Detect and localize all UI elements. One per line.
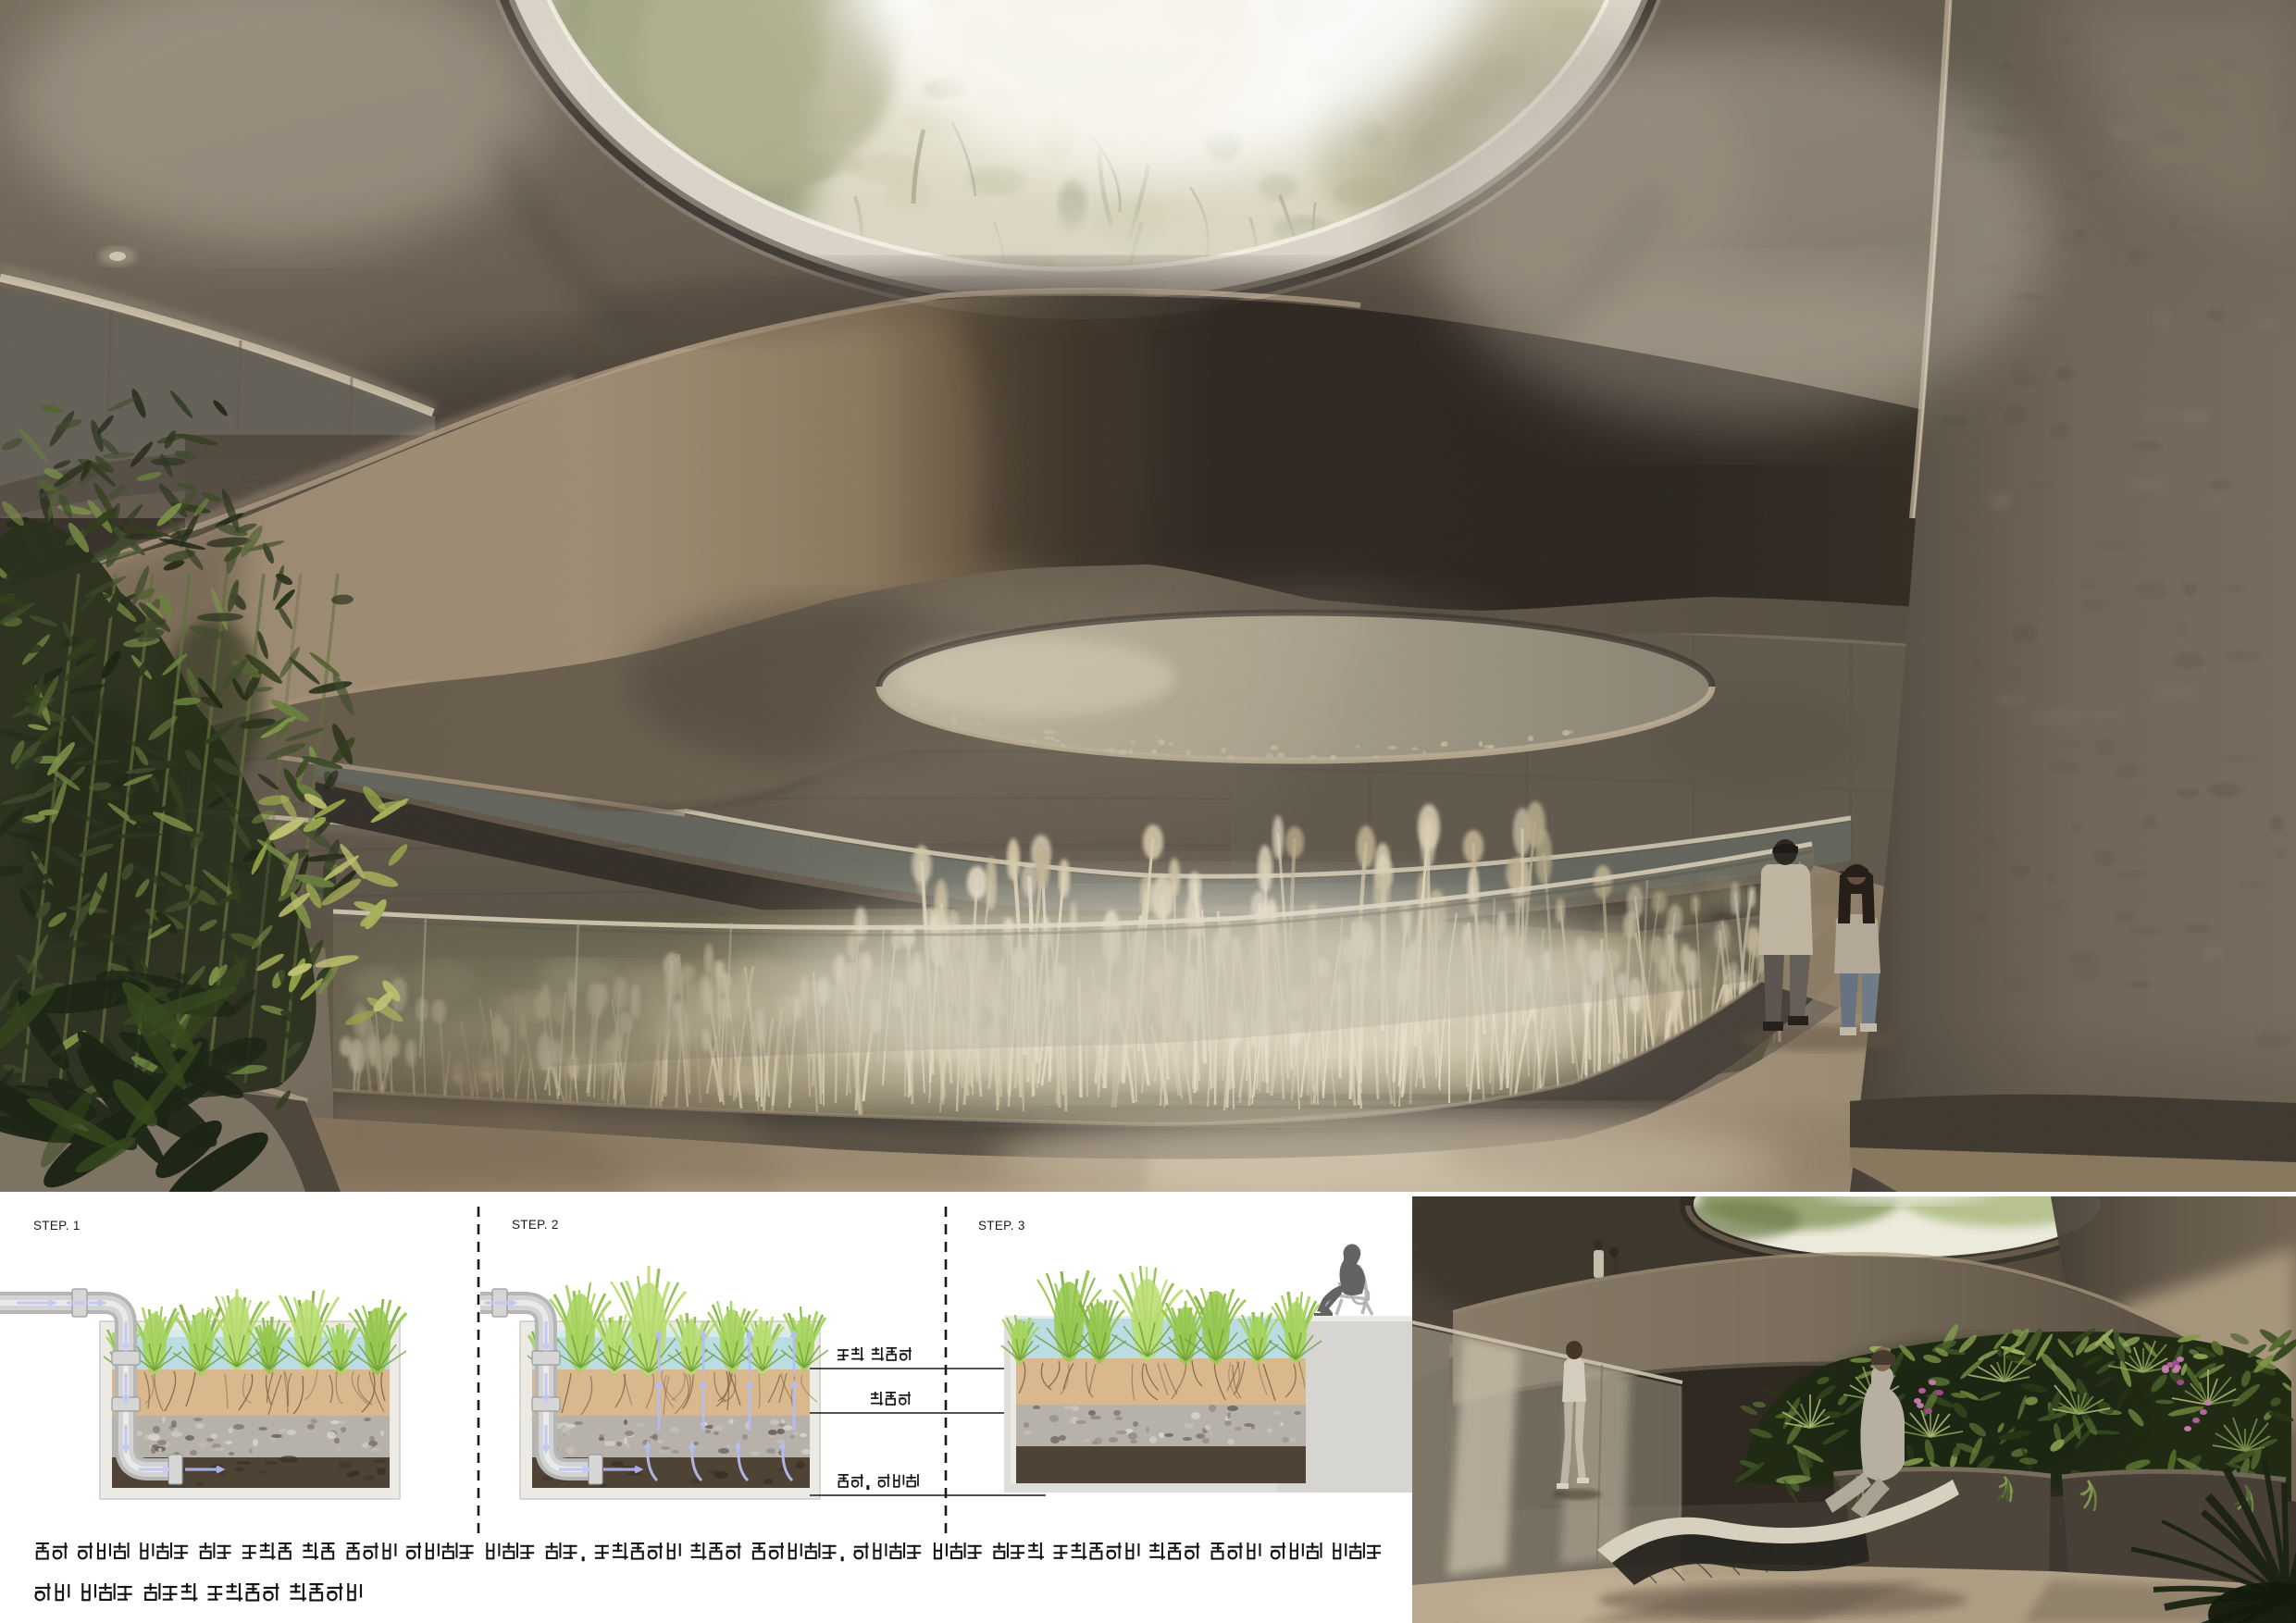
svg-text:STEP. 3: STEP. 3: [978, 1219, 1025, 1233]
svg-text:STEP. 1: STEP. 1: [33, 1219, 81, 1233]
svg-text:STEP. 2: STEP. 2: [512, 1218, 559, 1232]
